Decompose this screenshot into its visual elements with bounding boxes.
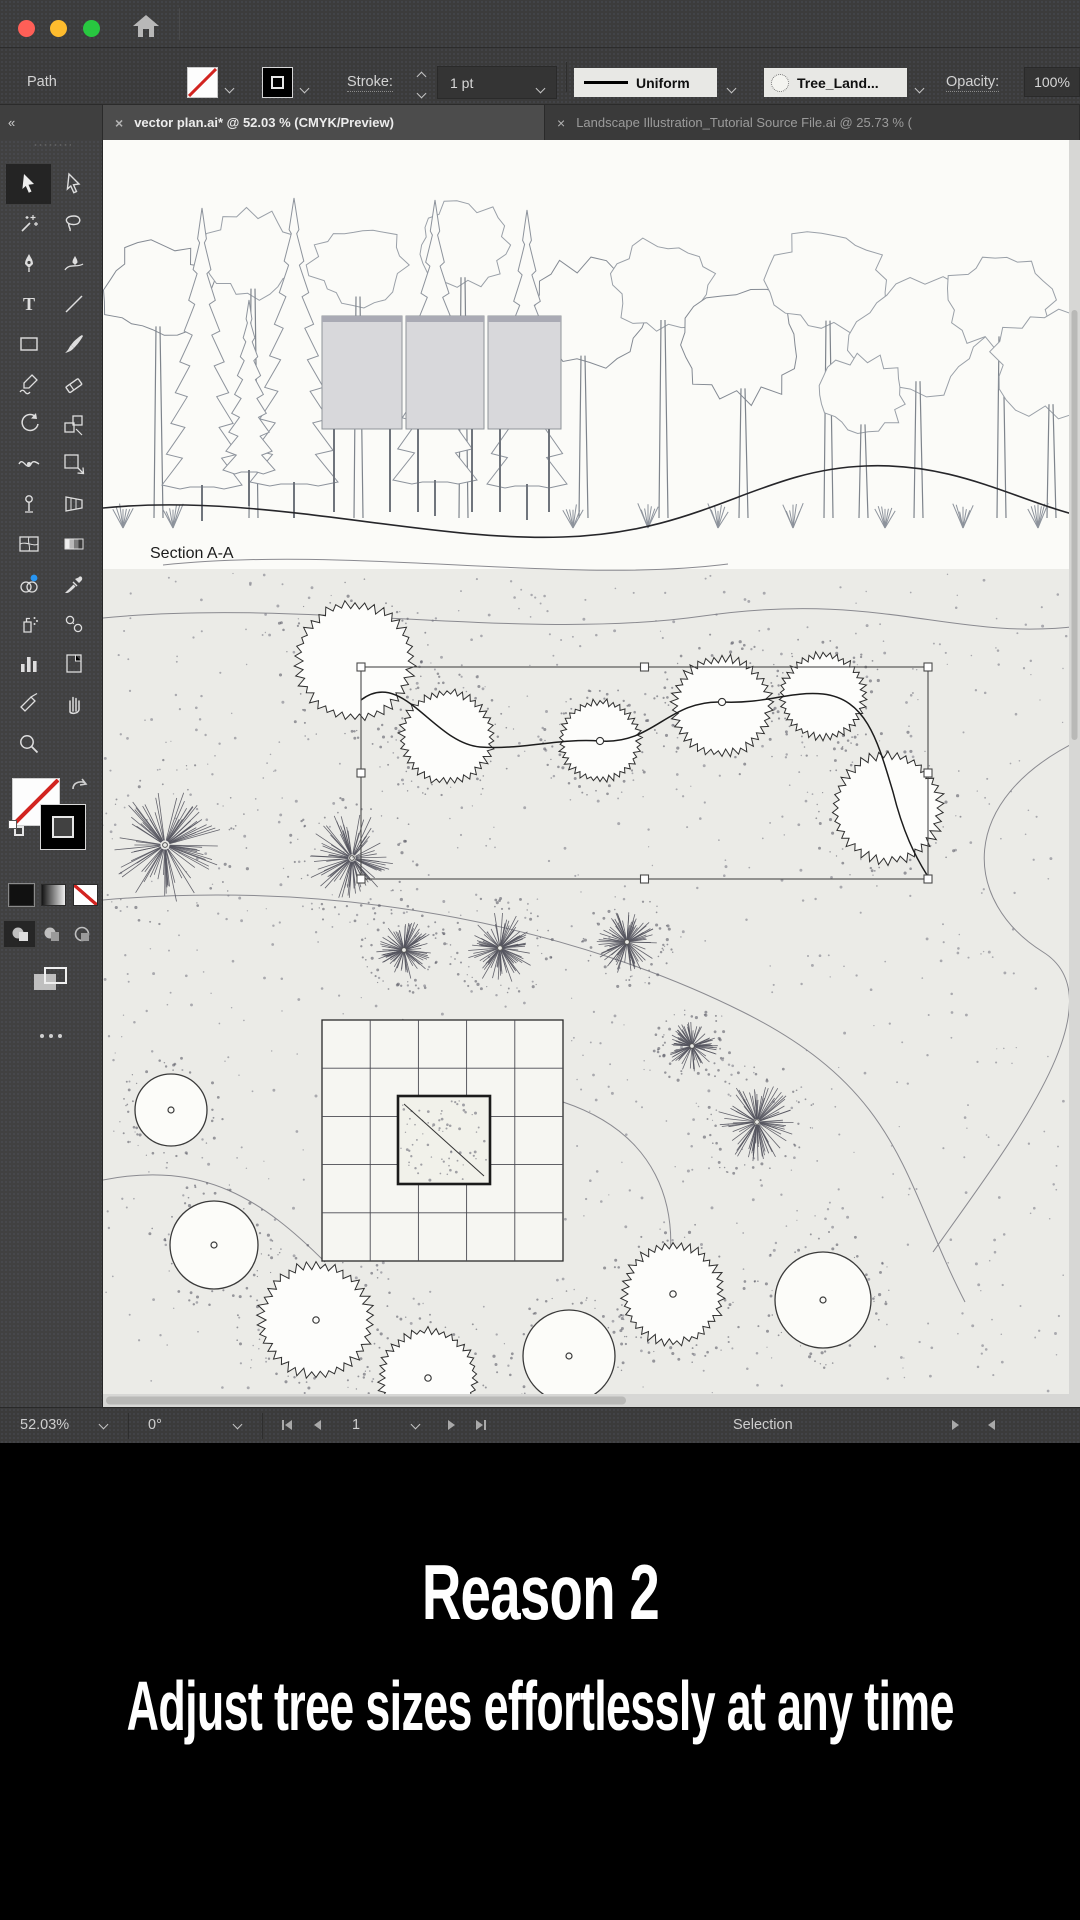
lasso-icon — [62, 212, 86, 236]
previous-artboard-button[interactable] — [314, 1420, 321, 1430]
toolbar: T — [0, 140, 103, 1407]
vertical-scrollbar-thumb[interactable] — [1072, 310, 1078, 740]
free-transform-icon — [62, 452, 86, 476]
chevron-down-icon[interactable] — [915, 84, 925, 94]
paintbrush-icon — [62, 332, 86, 356]
tab-label: vector plan.ai* @ 52.03 % (CMYK/Preview) — [134, 115, 394, 130]
controlbar-divider — [566, 62, 567, 92]
chevron-down-icon[interactable] — [233, 1420, 243, 1430]
tool-shape-builder[interactable] — [6, 564, 51, 604]
tool-rotate[interactable] — [6, 404, 51, 444]
stroke-weight-value: 1 pt — [450, 75, 473, 91]
document-tab-1[interactable]: ×vector plan.ai* @ 52.03 % (CMYK/Preview… — [103, 105, 545, 140]
canvas-area: Section A-A — [103, 140, 1080, 1407]
tool-free-transform[interactable] — [51, 444, 96, 484]
symbol-sprayer-icon — [17, 612, 41, 636]
tool-paintbrush[interactable] — [51, 324, 96, 364]
direct-selection-icon — [62, 172, 86, 196]
tool-zoom[interactable] — [6, 724, 51, 764]
fill-stroke-indicator[interactable] — [8, 776, 98, 886]
pergola-grid — [322, 1020, 563, 1261]
tool-eraser[interactable] — [51, 364, 96, 404]
chevron-down-icon[interactable] — [727, 84, 737, 94]
document-tab-bar: « ×vector plan.ai* @ 52.03 % (CMYK/Previ… — [0, 105, 1080, 140]
line-segment-icon — [62, 292, 86, 316]
path-anchor-point[interactable] — [718, 698, 725, 705]
tool-scale[interactable] — [51, 404, 96, 444]
selection-handle[interactable] — [641, 875, 649, 883]
draw-inside-button[interactable] — [66, 921, 97, 947]
stroke-weight-stepper[interactable] — [413, 71, 429, 99]
stepper-down-icon[interactable] — [416, 89, 426, 99]
tool-rectangle[interactable] — [6, 324, 51, 364]
edit-toolbar-button[interactable] — [40, 1034, 62, 1038]
tool-shaper[interactable] — [6, 364, 51, 404]
tool-perspective-grid[interactable] — [51, 484, 96, 524]
tool-column-graph[interactable] — [6, 644, 51, 684]
uniform-profile-icon — [584, 81, 628, 84]
swap-fill-stroke-icon[interactable] — [70, 776, 90, 792]
document-tab-2[interactable]: ×Landscape Illustration_Tutorial Source … — [545, 105, 1080, 140]
blend-icon — [62, 612, 86, 636]
none-fill-icon — [188, 68, 217, 97]
draw-normal-button[interactable] — [4, 921, 35, 947]
status-prev-button[interactable] — [988, 1420, 995, 1430]
slice-icon — [17, 692, 41, 716]
statusbar-divider — [128, 1413, 129, 1439]
tool-puppet-warp[interactable] — [6, 484, 51, 524]
width-icon — [17, 452, 41, 476]
selection-handle[interactable] — [924, 663, 932, 671]
title-bar — [0, 0, 1080, 48]
width-profile-select[interactable]: Uniform — [574, 68, 717, 97]
traffic-fullscreen-button[interactable] — [83, 20, 100, 37]
last-artboard-button[interactable] — [476, 1420, 486, 1430]
magic-wand-icon — [17, 212, 41, 236]
stepper-up-icon[interactable] — [416, 72, 426, 82]
eyedropper-icon — [62, 572, 86, 596]
control-bar: Path Stroke: 1 pt Uniform Tree_Land... O… — [0, 48, 1080, 105]
shaper-icon — [17, 372, 41, 396]
canvas[interactable]: Section A-A — [103, 140, 1080, 1407]
svg-text:T: T — [22, 294, 34, 314]
status-bar: 52.03% 0° 1 Selection — [0, 1407, 1080, 1443]
home-icon[interactable] — [132, 14, 160, 38]
tool-line-segment[interactable] — [51, 284, 96, 324]
none-button[interactable] — [73, 884, 98, 906]
caption-panel: Reason 2 Adjust tree sizes effortlessly … — [0, 1443, 1080, 1920]
fill-color-swatch[interactable] — [187, 67, 218, 98]
tool-selection[interactable] — [6, 164, 51, 204]
selection-handle[interactable] — [641, 663, 649, 671]
caption-subtitle: Adjust tree sizes effortlessly at any ti… — [126, 1671, 953, 1741]
chevron-down-icon[interactable] — [99, 1420, 109, 1430]
tool-hand[interactable] — [51, 684, 96, 724]
color-button[interactable] — [9, 884, 34, 906]
toolbar-grip-icon[interactable] — [33, 143, 71, 147]
artboard-icon — [62, 652, 86, 676]
brush-select[interactable]: Tree_Land... — [764, 68, 907, 97]
tool-artboard[interactable] — [51, 644, 96, 684]
default-fill-stroke-icon[interactable] — [8, 820, 24, 836]
selection-handle[interactable] — [357, 875, 365, 883]
chevron-down-icon[interactable] — [225, 84, 235, 94]
tool-width[interactable] — [6, 444, 51, 484]
width-profile-value: Uniform — [636, 75, 690, 91]
next-artboard-button[interactable] — [448, 1420, 455, 1430]
type-icon: T — [17, 292, 41, 316]
eraser-icon — [62, 372, 86, 396]
tool-magic-wand[interactable] — [6, 204, 51, 244]
shape-builder-icon — [17, 572, 41, 596]
tool-gradient[interactable] — [51, 524, 96, 564]
statusbar-divider — [262, 1413, 263, 1439]
puppet-warp-icon — [17, 492, 41, 516]
column-graph-icon — [17, 652, 41, 676]
context-label: Path — [27, 74, 57, 90]
drawing-modes — [4, 921, 97, 947]
selection-handle[interactable] — [357, 663, 365, 671]
tool-direct-selection[interactable] — [51, 164, 96, 204]
brush-name-value: Tree_Land... — [797, 75, 879, 91]
status-next-button[interactable] — [952, 1420, 959, 1430]
tool-curvature[interactable] — [51, 244, 96, 284]
tab-label: Landscape Illustration_Tutorial Source F… — [576, 115, 912, 130]
artboard-number-value[interactable]: 1 — [352, 1417, 360, 1433]
mesh-icon — [17, 532, 41, 556]
chevron-down-icon[interactable] — [411, 1420, 421, 1430]
tool-lasso[interactable] — [51, 204, 96, 244]
tool-type[interactable]: T — [6, 284, 51, 324]
pen-icon — [17, 252, 41, 276]
section-label: Section A-A — [150, 545, 234, 562]
scale-icon — [62, 412, 86, 436]
tool-pen[interactable] — [6, 244, 51, 284]
stroke-color-swatch[interactable] — [262, 67, 293, 98]
close-tab-icon[interactable]: × — [557, 115, 565, 131]
zoom-icon — [17, 732, 41, 756]
rotation-value[interactable]: 0° — [148, 1417, 162, 1433]
opacity-value[interactable]: 100% — [1024, 67, 1080, 97]
curvature-icon — [62, 252, 86, 276]
rotate-icon — [17, 412, 41, 436]
selection-handle[interactable] — [924, 769, 932, 777]
tool-mesh[interactable] — [6, 524, 51, 564]
screen-mode-button[interactable] — [33, 966, 67, 999]
illustrator-window: Path Stroke: 1 pt Uniform Tree_Land... O… — [0, 0, 1080, 1920]
first-artboard-button[interactable] — [282, 1420, 292, 1430]
horizontal-scrollbar-thumb[interactable] — [106, 1397, 626, 1405]
titlebar-divider — [179, 8, 180, 40]
selection-icon — [17, 172, 41, 196]
zoom-level-value[interactable]: 52.03% — [20, 1417, 69, 1433]
selection-handle[interactable] — [924, 875, 932, 883]
plan-background — [103, 569, 1080, 1407]
chevron-down-icon[interactable] — [300, 84, 310, 94]
close-tab-icon[interactable]: × — [115, 115, 123, 131]
gradient-icon — [62, 532, 86, 556]
traffic-close-button[interactable] — [18, 20, 35, 37]
tool-blend[interactable] — [51, 604, 96, 644]
stroke-indicator-icon — [271, 76, 284, 89]
caption-reason: Reason 2 — [421, 1553, 658, 1631]
stroke-label[interactable]: Stroke: — [347, 74, 393, 92]
hand-icon — [62, 692, 86, 716]
gradient-button[interactable] — [41, 884, 66, 906]
draw-behind-button[interactable] — [35, 921, 66, 947]
current-tool-label: Selection — [733, 1417, 793, 1433]
collapse-panel-button[interactable]: « — [8, 115, 15, 130]
brush-icon — [771, 74, 789, 92]
perspective-grid-icon — [62, 492, 86, 516]
stroke-weight-select[interactable]: 1 pt — [437, 66, 557, 99]
toolbar-header: « — [0, 105, 103, 140]
traffic-minimize-button[interactable] — [50, 20, 67, 37]
opacity-label[interactable]: Opacity: — [946, 74, 999, 92]
path-anchor-point[interactable] — [596, 737, 603, 744]
selection-handle[interactable] — [357, 769, 365, 777]
tool-symbol-sprayer[interactable] — [6, 604, 51, 644]
tool-eyedropper[interactable] — [51, 564, 96, 604]
tool-slice[interactable] — [6, 684, 51, 724]
stroke-swatch-black[interactable] — [40, 804, 86, 850]
rectangle-icon — [17, 332, 41, 356]
